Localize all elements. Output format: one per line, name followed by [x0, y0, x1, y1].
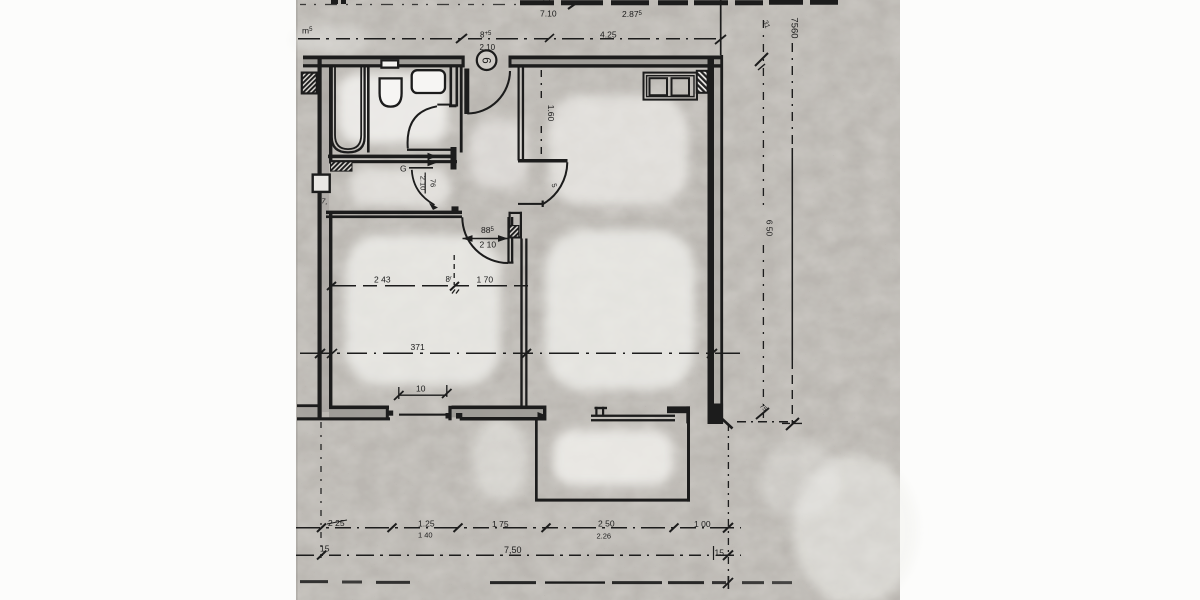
- svg-text:7,50: 7,50: [504, 545, 522, 555]
- svg-text:1 40: 1 40: [418, 531, 433, 540]
- svg-text:1 00: 1 00: [694, 519, 711, 529]
- svg-text:4.25: 4.25: [600, 30, 617, 40]
- svg-text:2.26: 2.26: [597, 532, 612, 541]
- svg-text:7560: 7560: [789, 17, 800, 38]
- svg-text:76: 76: [429, 179, 438, 187]
- svg-text:67: 67: [543, 0, 551, 6]
- svg-text:7.10: 7.10: [540, 9, 557, 19]
- svg-text:6: 6: [480, 57, 492, 63]
- svg-text:371: 371: [411, 342, 425, 352]
- svg-text:G: G: [400, 164, 407, 174]
- svg-text:2 43: 2 43: [374, 275, 391, 285]
- svg-text:1 70: 1 70: [477, 275, 494, 285]
- svg-text:2.10: 2.10: [419, 176, 428, 191]
- svg-text:1.60: 1.60: [546, 105, 556, 122]
- svg-text:15: 15: [715, 548, 725, 558]
- svg-text:2 50: 2 50: [598, 519, 615, 529]
- svg-text:2.10: 2.10: [480, 43, 496, 52]
- svg-text:2 10: 2 10: [480, 240, 497, 250]
- svg-text:6 50: 6 50: [765, 220, 775, 237]
- svg-text:1 75: 1 75: [492, 519, 509, 529]
- svg-text:10: 10: [416, 384, 426, 394]
- svg-text:1.25: 1.25: [418, 519, 435, 529]
- svg-text:15: 15: [320, 544, 330, 554]
